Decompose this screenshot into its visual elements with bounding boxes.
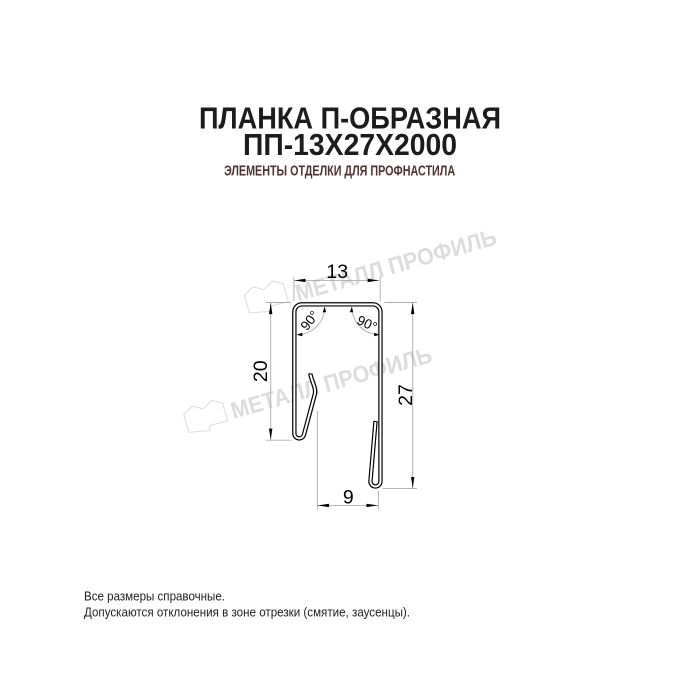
svg-text:ЭЛЕМЕНТЫ ОТДЕЛКИ ДЛЯ ПРОФНАСТИ: ЭЛЕМЕНТЫ ОТДЕЛКИ ДЛЯ ПРОФНАСТИЛА: [224, 164, 455, 180]
svg-text:МЕТАЛЛ ПРОФИЛЬ: МЕТАЛЛ ПРОФИЛЬ: [292, 224, 499, 306]
svg-text:20: 20: [250, 360, 272, 382]
svg-text:13: 13: [326, 261, 348, 283]
svg-text:90°: 90°: [298, 308, 322, 333]
svg-text:90°: 90°: [355, 312, 380, 334]
svg-text:ПП-13Х27Х2000: ПП-13Х27Х2000: [243, 127, 457, 162]
svg-text:9: 9: [343, 486, 354, 508]
svg-text:Допускаются отклонения в зоне: Допускаются отклонения в зоне отрезки (с…: [84, 605, 410, 619]
svg-text:27: 27: [395, 384, 417, 406]
svg-text:Все размеры справочные.: Все размеры справочные.: [84, 590, 225, 604]
